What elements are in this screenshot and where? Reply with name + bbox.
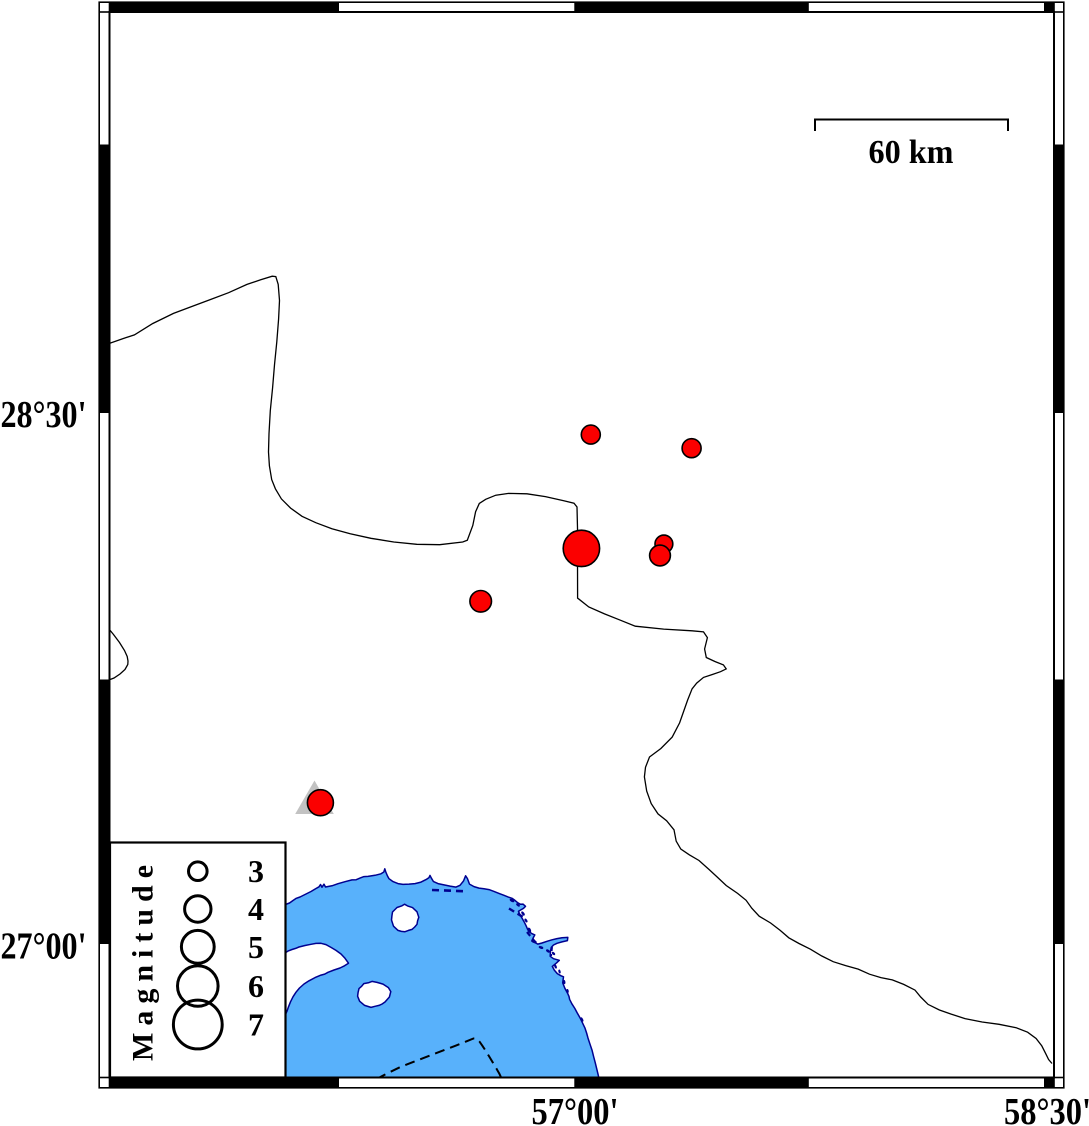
svg-text:5: 5 [248,929,264,965]
svg-text:3: 3 [248,853,264,889]
svg-text:7: 7 [248,1007,264,1043]
svg-text:58°30': 58°30' [1004,1091,1089,1126]
svg-text:4: 4 [248,891,264,927]
svg-text:6: 6 [248,968,264,1004]
svg-text:28°30': 28°30' [1,394,87,436]
svg-text:60 km: 60 km [869,134,954,171]
svg-text:57°00': 57°00' [532,1091,619,1126]
svg-text:27°00': 27°00' [1,926,87,968]
svg-text:Magnitude: Magnitude [127,858,160,1061]
